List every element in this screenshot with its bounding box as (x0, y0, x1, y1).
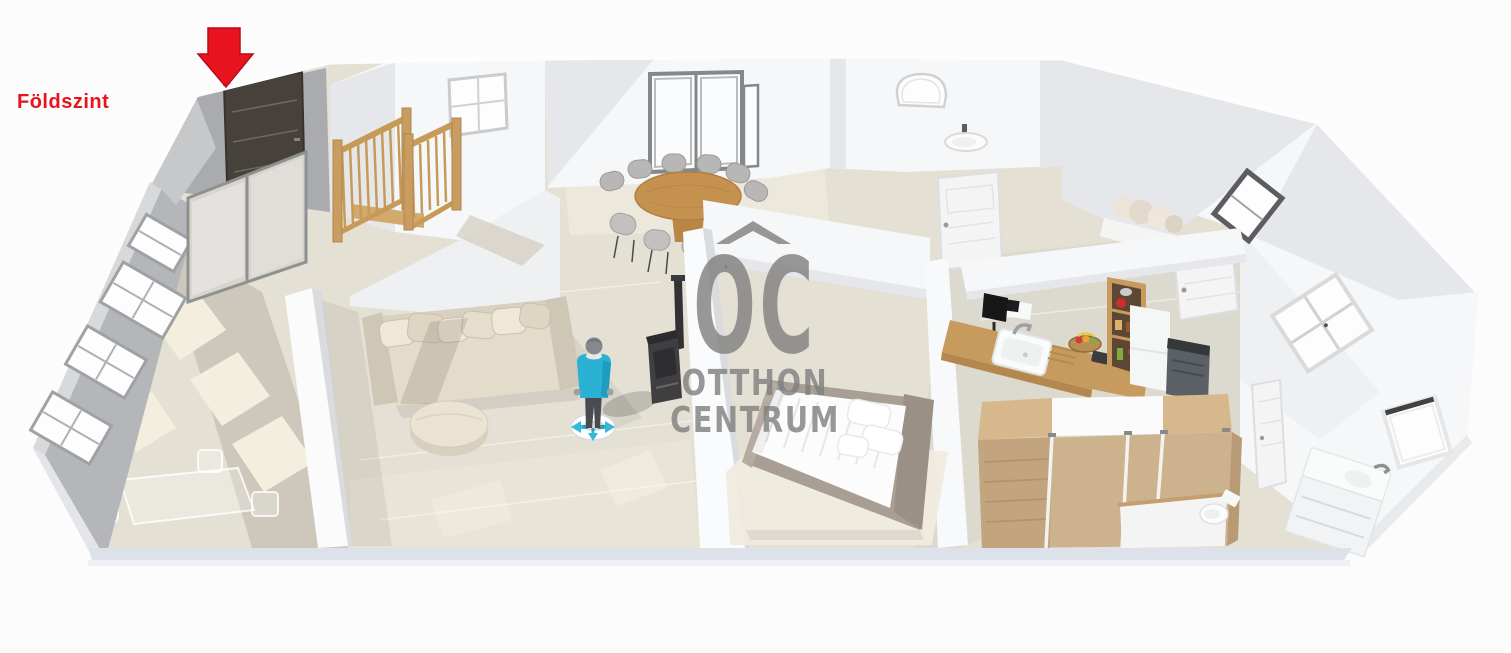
bathroom-door (1252, 380, 1286, 490)
floorplan-3d-render: OC OTTHON CENTRUM Földszint (0, 0, 1511, 653)
ottoman (410, 401, 488, 456)
door-handle (294, 138, 300, 141)
arched-window (897, 74, 946, 107)
watermark-line2: CENTRUM (670, 399, 840, 441)
watermark: OC OTTHON CENTRUM (670, 221, 840, 441)
watermark-line1: OTTHON (682, 362, 829, 404)
floorplan-viewport: OC OTTHON CENTRUM Földszint (0, 0, 1511, 653)
wardrobe-room (978, 394, 1242, 548)
door-handle (944, 223, 949, 228)
pot (1120, 288, 1132, 296)
wardrobe (978, 394, 1242, 548)
red-kettle (1116, 298, 1126, 308)
hall-door (938, 172, 1002, 270)
desk-chair (982, 293, 1008, 322)
front-wall-band (88, 548, 1352, 566)
fridge (1166, 338, 1210, 402)
floor-label: Földszint (17, 91, 109, 113)
entrance-arrow (198, 28, 253, 87)
